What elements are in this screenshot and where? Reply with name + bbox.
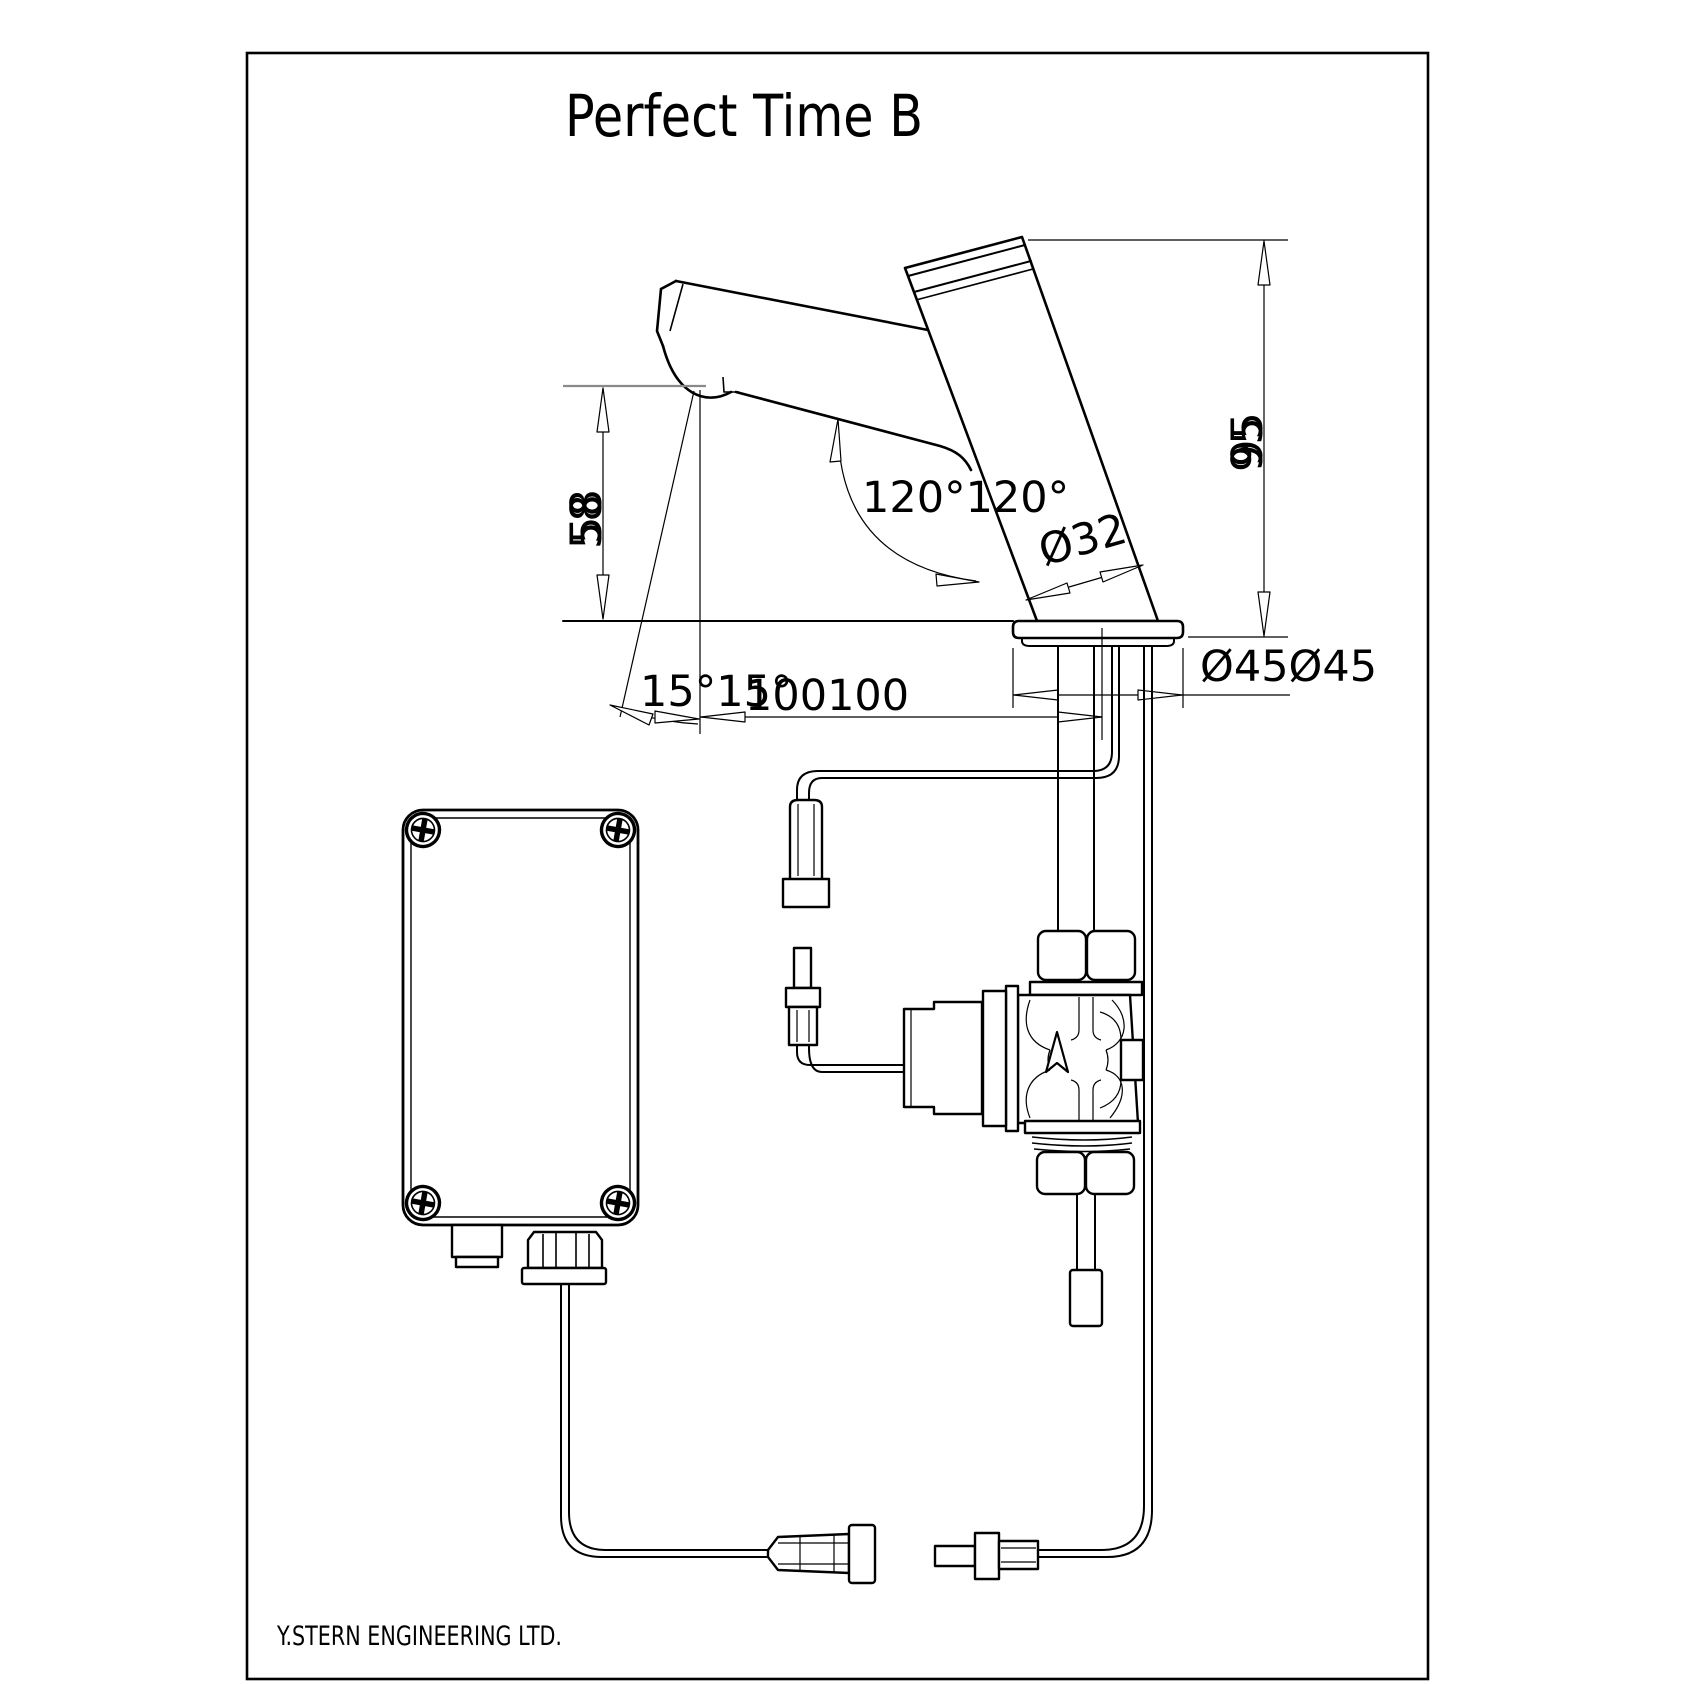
- inlet-fitting: [1070, 1270, 1102, 1326]
- dim-120-label: 120°120°: [862, 473, 1069, 523]
- control-box-cover: [403, 810, 638, 1225]
- hex-nut: [1086, 1152, 1134, 1194]
- box-connector-port: [452, 1225, 502, 1257]
- solenoid-coil: [904, 1002, 982, 1114]
- valve-flange: [1025, 1121, 1140, 1133]
- hex-nut: [1087, 931, 1135, 980]
- control-box: [403, 810, 638, 1284]
- dim-100-label: 100100: [745, 671, 909, 721]
- valve-outlet-tab: [1121, 1040, 1143, 1080]
- valve-bracket: [1006, 986, 1018, 1131]
- dim-d45-label: Ø45Ø45: [1200, 642, 1377, 692]
- cable-gland: [522, 1232, 606, 1284]
- footer-company-name: Y.STERN ENGINEERING LTD.: [276, 1621, 562, 1652]
- valve-washer: [1030, 982, 1142, 995]
- page-title: Perfect Time B: [565, 82, 923, 150]
- hex-nut: [1037, 1152, 1085, 1194]
- valve-bracket: [983, 991, 1006, 1126]
- box-connector-lip: [456, 1257, 498, 1267]
- drawing-page: Perfect Time B: [0, 0, 1684, 1684]
- technical-drawing: Perfect Time B: [0, 0, 1684, 1684]
- sensor-cable-connector: [783, 800, 829, 907]
- dim-58-label-shadow: 58: [562, 489, 612, 544]
- hex-nut: [1038, 931, 1086, 980]
- dim-95-label-shadow: 95: [1223, 412, 1273, 467]
